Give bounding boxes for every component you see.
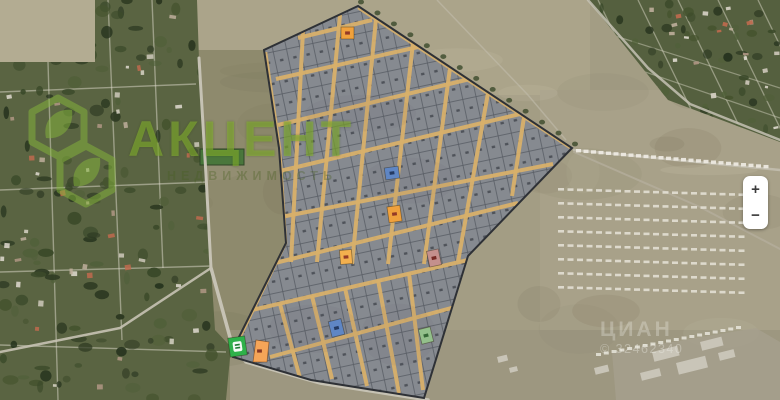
zoom-control: + −	[743, 176, 768, 229]
plot-marker-orange-wedge[interactable]	[253, 340, 269, 362]
zoom-in-button[interactable]: +	[743, 176, 768, 203]
plot-marker-green-badge[interactable]	[228, 336, 247, 357]
zoom-out-button[interactable]: −	[743, 203, 768, 230]
map-viewport[interactable]: АКЦЕНТ НЕДВИЖИМОСТЬ ЦИАН © 32462340 + −	[0, 0, 780, 400]
plot-marker-blue-upper[interactable]	[384, 166, 400, 180]
plot-marker-orange-mid[interactable]	[387, 205, 402, 223]
plot-marker-orange-lower[interactable]	[339, 250, 352, 265]
plot-marker-orange-top[interactable]	[341, 27, 354, 39]
satellite-map[interactable]	[0, 0, 780, 400]
